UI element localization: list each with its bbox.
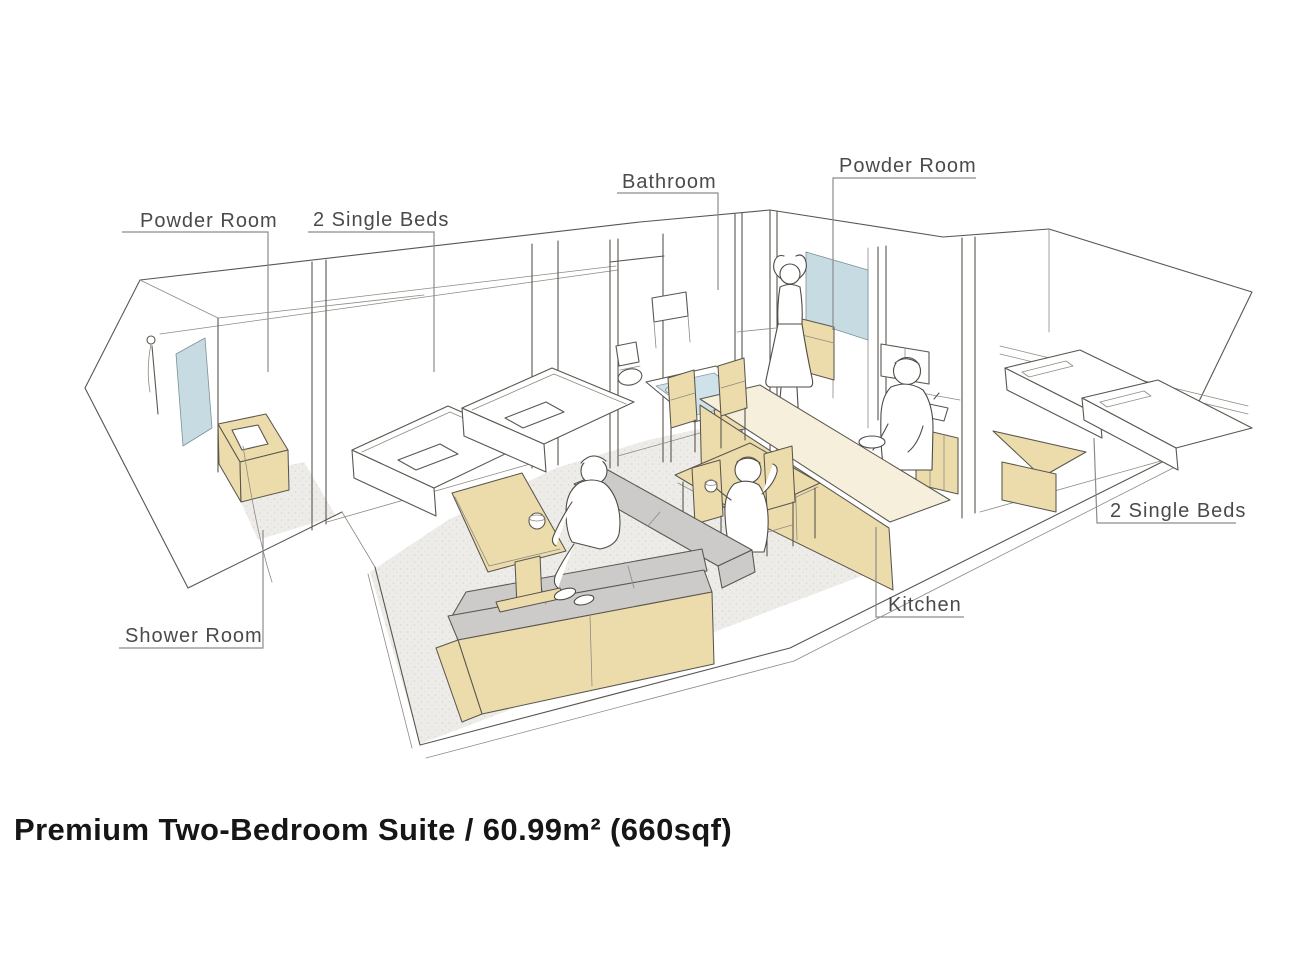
shower-head [147, 336, 155, 344]
label-single-beds-left: 2 Single Beds [308, 209, 449, 372]
label-text: Powder Room [140, 210, 278, 232]
dining-chair [692, 460, 723, 524]
label-shower-room: Shower Room [119, 530, 263, 648]
cup [705, 480, 717, 492]
floorplan-illustration: Powder Room 2 Single Beds Bathroom Powde… [0, 0, 1300, 975]
label-text: Shower Room [125, 625, 263, 647]
toilet-tank [616, 342, 639, 366]
leader-line [617, 193, 718, 290]
label-text: Bathroom [622, 171, 717, 193]
label-text: 2 Single Beds [313, 209, 449, 231]
label-text: 2 Single Beds [1110, 500, 1246, 522]
label-text: Powder Room [839, 155, 977, 177]
page-title: Premium Two-Bedroom Suite / 60.99m² (660… [14, 812, 732, 847]
label-text: Kitchen [888, 594, 962, 616]
dining-chair [718, 358, 747, 416]
floorplan-page: Powder Room 2 Single Beds Bathroom Powde… [0, 0, 1300, 975]
label-bathroom: Bathroom [617, 171, 718, 290]
shower-glass-panel [176, 338, 212, 446]
bathroom-shelf [652, 292, 688, 322]
bedroom-2-area [993, 350, 1252, 512]
dining-chair [668, 370, 697, 428]
